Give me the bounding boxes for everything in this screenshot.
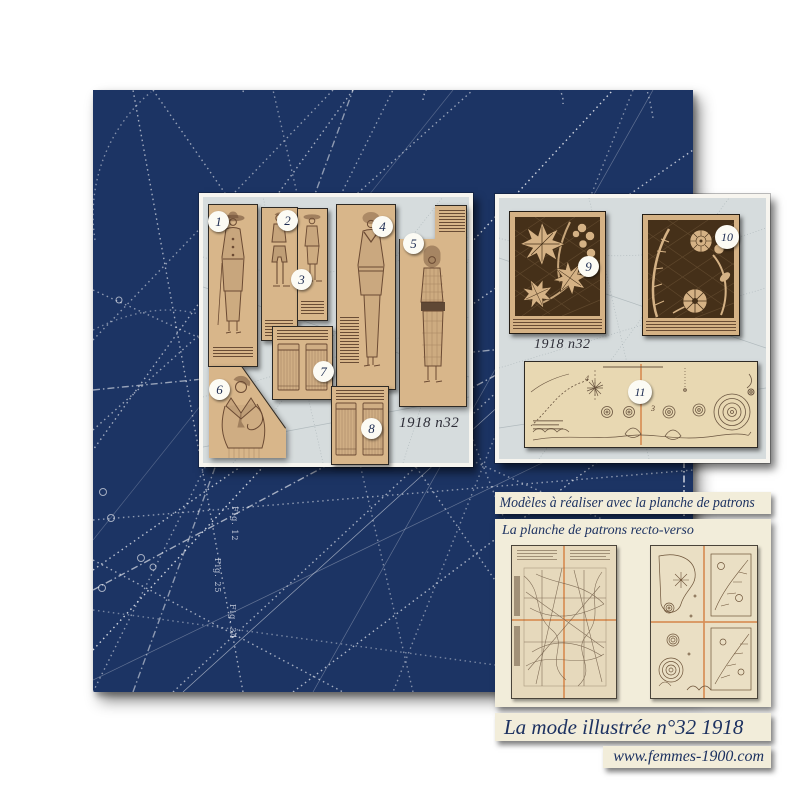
figure-number-badge: 7	[313, 361, 334, 382]
website-band: www.femmes-1900.com	[603, 746, 771, 768]
title-band: La mode illustrée n°32 1918	[495, 713, 771, 741]
edition-label: 1918 n32	[399, 415, 459, 432]
figure-number-badge: 10	[715, 225, 739, 249]
figure-number-badge: 4	[372, 216, 393, 237]
poster: Fig. 22 Fig. 25 Fig. 34 Fig. 12 Fig. 31	[93, 90, 693, 692]
verso-illustration	[651, 546, 757, 698]
planche-panel: La planche de patrons recto-verso	[495, 519, 771, 707]
pattern-piece-number: 4	[585, 374, 589, 383]
figure-number-badge: 1	[208, 211, 229, 232]
figure-number-badge: 9	[578, 256, 599, 277]
pattern-sheet-verso	[650, 545, 758, 699]
fashion-figure-3-cutout	[297, 208, 328, 321]
models-band-text: Modèles à réaliser avec la planche de pa…	[495, 495, 755, 512]
pattern-piece-number: 3	[651, 404, 655, 413]
background-fig-label: Fig. 34	[228, 604, 237, 640]
figure-4-caption	[340, 317, 359, 365]
figure-5-caption	[439, 210, 465, 232]
models-band: Modèles à réaliser avec la planche de pa…	[495, 492, 771, 514]
magazine-title: La mode illustrée n°32 1918	[495, 715, 743, 740]
figure-8-caption	[336, 390, 384, 400]
planche-header-text: La planche de patrons recto-verso	[502, 523, 694, 539]
background-fig-label: Fig. 25	[213, 558, 222, 594]
pattern-sheet-recto	[511, 545, 617, 699]
recto-illustration	[512, 546, 616, 698]
screenshot-canvas: Fig. 22 Fig. 25 Fig. 34 Fig. 12 Fig. 31	[0, 0, 800, 800]
pattern-sheet-illustration	[525, 362, 757, 447]
background-fig-label: Fig. 12	[230, 506, 239, 542]
edition-label: 1918 n32	[534, 337, 591, 353]
figure-number-badge: 3	[291, 269, 312, 290]
figure-number-badge: 8	[361, 418, 382, 439]
embroidery-10-caption	[646, 321, 736, 332]
figure-1-caption	[213, 347, 253, 359]
figure-number-badge: 6	[209, 379, 230, 400]
figure-3-caption	[301, 301, 324, 316]
figure-7-caption	[277, 330, 328, 341]
website-url: www.femmes-1900.com	[613, 748, 771, 766]
figure-number-badge: 11	[628, 380, 652, 404]
embroidery-panel: 1918 n32	[495, 194, 770, 463]
pattern-sheet-strip-11: 4 3	[524, 361, 758, 448]
figure-number-badge: 2	[277, 210, 298, 231]
figure-number-badge: 5	[403, 233, 424, 254]
fashion-plates-panel: 1 2 3 4 5 6 7 8 1918 n32	[199, 193, 473, 467]
embroidery-9-caption	[513, 319, 602, 331]
